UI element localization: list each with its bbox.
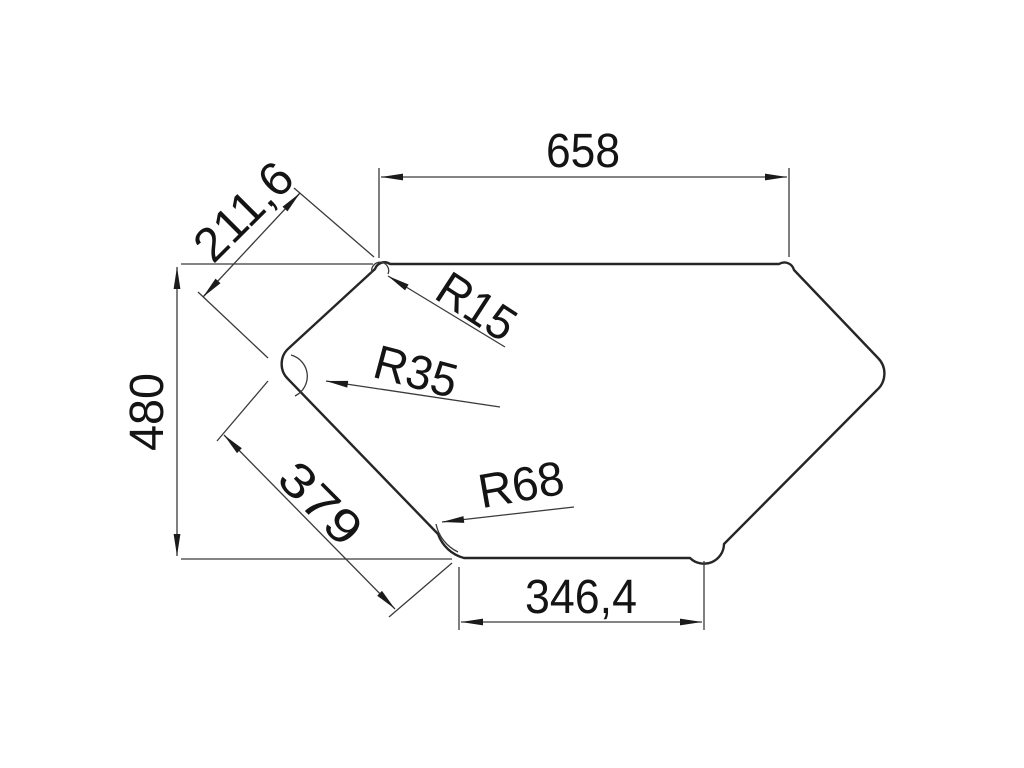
- extension-line: [389, 563, 452, 617]
- dimension-label-bottom-width: 346,4: [525, 571, 637, 624]
- dimension-label-lower-left-edge: 379: [267, 451, 372, 556]
- radius-callout-r35: R35: [291, 336, 500, 409]
- extension-line: [217, 381, 268, 441]
- dimension-label-upper-left-edge: 211,6: [184, 152, 305, 273]
- radius-label-r35: R35: [368, 336, 463, 409]
- dimension-bottom-width: 346,4: [459, 561, 704, 630]
- dimension-lower-left-edge: 379: [217, 381, 452, 617]
- extension-line: [198, 292, 268, 358]
- dimension-upper-left-edge: 211,6: [184, 152, 374, 358]
- dimension-label-left-height: 480: [121, 373, 174, 451]
- dimension-top-width: 658: [379, 125, 789, 258]
- radius-label-r15: R15: [427, 262, 526, 352]
- drawing-page: 658 211,6 480 379 346,4: [0, 0, 1024, 768]
- extension-line: [294, 188, 374, 257]
- radius-callout-r68: R68: [436, 452, 574, 552]
- drawing-canvas: 658 211,6 480 379 346,4: [0, 0, 1024, 768]
- dimension-label-top-width: 658: [546, 125, 620, 178]
- dimension-left-height: 480: [121, 264, 452, 559]
